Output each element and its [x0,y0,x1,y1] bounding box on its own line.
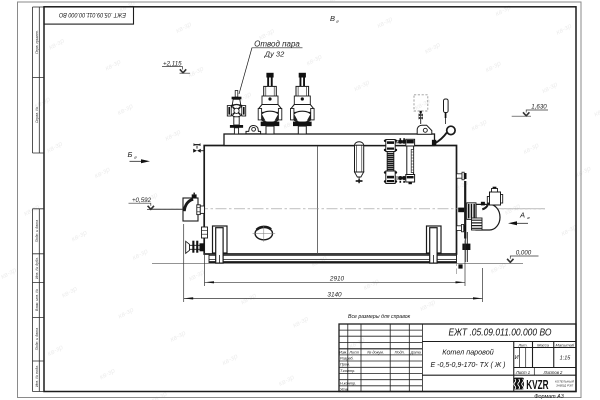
svg-text:Лит.: Лит. [517,342,527,347]
svg-text:2910: 2910 [329,276,345,283]
svg-text:Справ. №: Справ. № [35,107,39,123]
svg-text:1,630: 1,630 [531,104,547,111]
svg-text:Е -0,5-0,9-170- ТХ ( Ж ): Е -0,5-0,9-170- ТХ ( Ж ) [431,362,506,369]
svg-text:Дата: Дата [410,350,421,354]
svg-text:3140: 3140 [327,292,342,299]
svg-text:Лист 1: Лист 1 [515,370,530,375]
svg-text:ЕЖТ .05.09.011.00.000 ВО: ЕЖТ .05.09.011.00.000 ВО [59,11,126,18]
svg-text:Взам. инв. №: Взам. инв. № [35,289,39,311]
svg-text:Б: Б [128,150,133,159]
svg-text:Изм.: Изм. [339,350,347,354]
svg-text:В: В [330,14,335,23]
svg-text:Ду 32: Ду 32 [264,49,285,58]
svg-text:И: И [515,355,519,361]
svg-text:Перв. примен.: Перв. примен. [35,30,39,54]
svg-text:Разраб.: Разраб. [340,357,354,361]
svg-text:KVZR: KVZR [526,377,548,392]
svg-text:ЗАВОД РЭП: ЗАВОД РЭП [556,384,574,388]
svg-text:Листов 2: Листов 2 [543,370,563,375]
svg-text:Отвод пара: Отвод пара [254,40,300,49]
svg-text:А: А [519,211,525,220]
svg-text:Котел паровой: Котел паровой [442,348,494,357]
svg-text:Все размеры для справок: Все размеры для справок [348,314,411,320]
svg-text:Н.контр.: Н.контр. [340,382,356,386]
svg-text:+0,592: +0,592 [132,197,152,204]
svg-text:Масштаб: Масштаб [555,342,574,347]
svg-text:Инв. № подл.: Инв. № подл. [35,365,39,387]
svg-text:Утв.: Утв. [340,388,349,392]
svg-text:Подп. и дата: Подп. и дата [35,328,39,351]
svg-text:0,000: 0,000 [516,250,532,257]
svg-text:Подп. и дата: Подп. и дата [35,220,39,243]
svg-text:1:15: 1:15 [560,356,572,362]
svg-text:Масса: Масса [537,342,550,347]
svg-text:Т.контр.: Т.контр. [340,369,355,373]
svg-text:+2,115: +2,115 [163,60,182,67]
svg-text:Подп.: Подп. [395,350,405,354]
svg-text:Инв. № дубл.: Инв. № дубл. [35,257,39,279]
svg-text:Лист: Лист [348,350,359,354]
svg-text:ЕЖТ .05.09.011.00.000 ВО: ЕЖТ .05.09.011.00.000 ВО [449,326,552,338]
svg-text:Формат А3: Формат А3 [534,394,564,400]
svg-text:№ докум.: № докум. [367,350,384,354]
svg-text:Пров.: Пров. [340,363,350,367]
